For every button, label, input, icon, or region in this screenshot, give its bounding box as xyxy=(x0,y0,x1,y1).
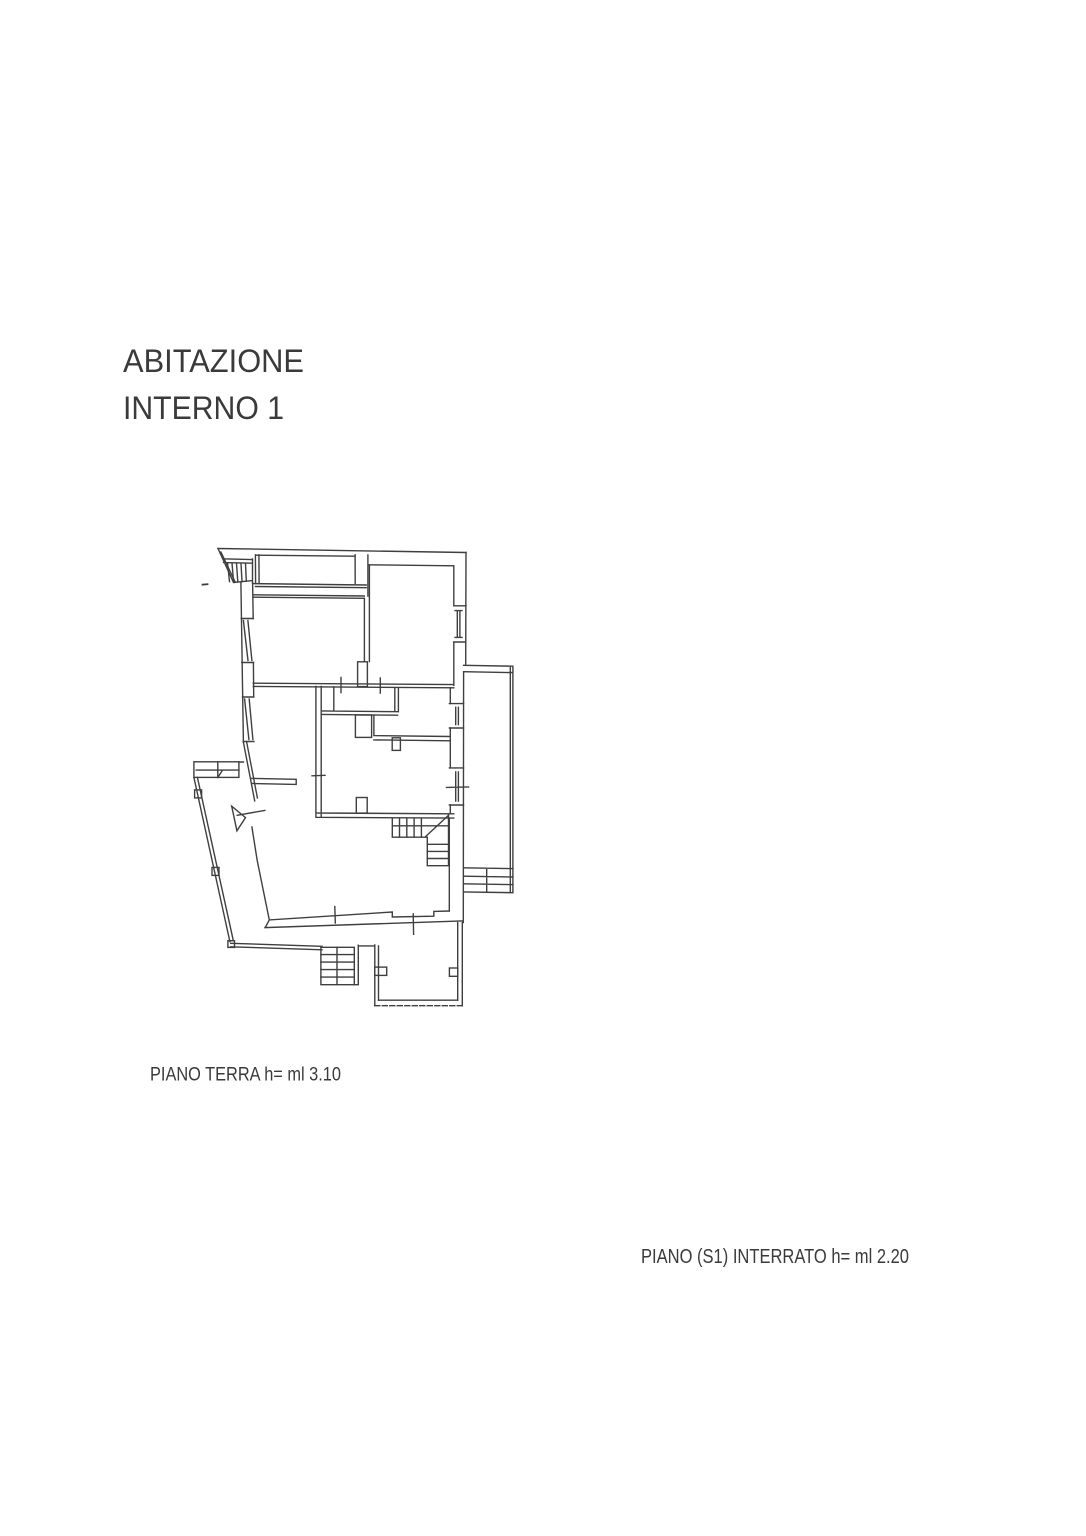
svg-text:PIANO (S1) INTERRATO h= ml 2.2: PIANO (S1) INTERRATO h= ml 2.20 xyxy=(641,1245,909,1268)
svg-text:ABITAZIONE: ABITAZIONE xyxy=(123,343,304,379)
svg-text:INTERNO 1: INTERNO 1 xyxy=(123,390,284,426)
svg-text:PIANO TERRA h= ml 3.10: PIANO TERRA h= ml 3.10 xyxy=(150,1065,341,1086)
